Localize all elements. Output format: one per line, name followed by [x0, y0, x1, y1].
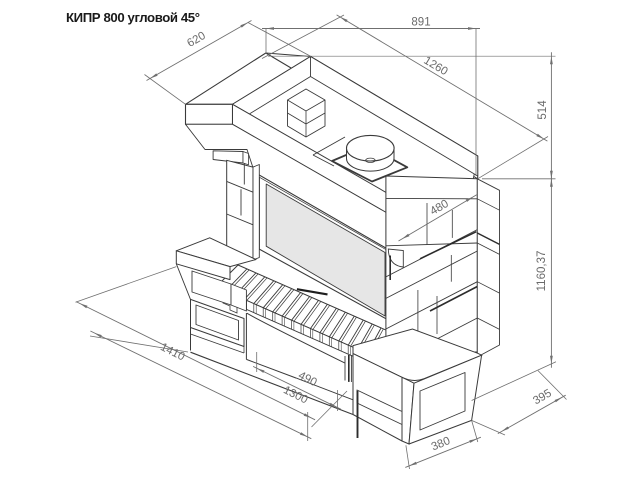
- svg-text:891: 891: [411, 17, 430, 29]
- svg-text:514: 514: [537, 100, 549, 120]
- svg-text:КИПР 800 угловой 45°: КИПР 800 угловой 45°: [66, 10, 200, 25]
- svg-text:1160,37: 1160,37: [536, 251, 548, 292]
